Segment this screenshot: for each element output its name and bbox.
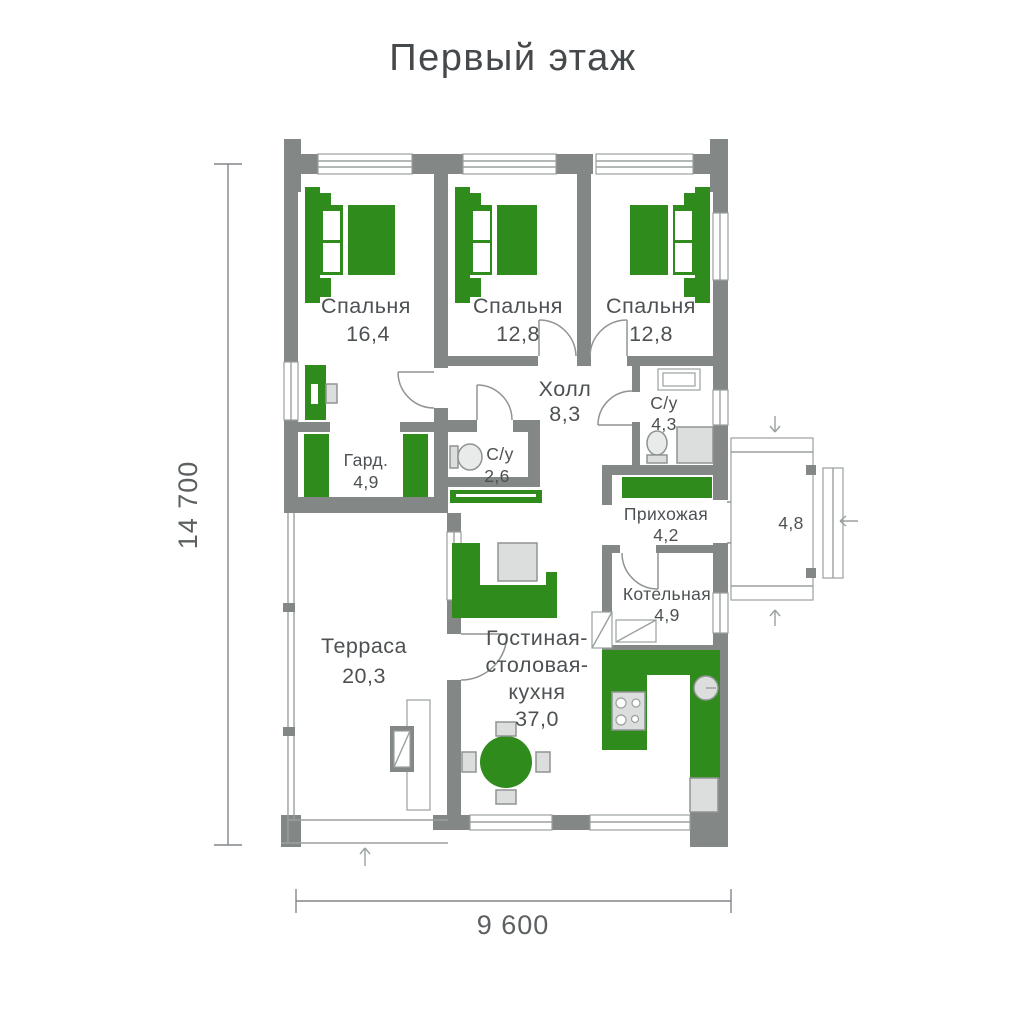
stove-icon xyxy=(612,692,645,730)
room-area-living: 37,0 xyxy=(515,707,559,731)
room-area-bathroom-small: 2,6 xyxy=(484,466,510,486)
room-area-terrace: 20,3 xyxy=(342,664,386,688)
room-area-entry: 4,2 xyxy=(653,525,679,545)
room-label-wardrobe: Гард. xyxy=(344,450,389,470)
room-label-hall: Холл xyxy=(539,377,592,401)
bed-icon xyxy=(305,187,395,303)
porch-steps xyxy=(823,468,843,578)
coffee-table-icon xyxy=(498,543,537,581)
room-label-bedroom2: Спальня xyxy=(473,294,563,318)
room-label-living-1: Гостиная- xyxy=(486,626,588,650)
sink-icon xyxy=(658,369,700,390)
dimension-width-label: 9 600 xyxy=(477,910,550,940)
bench-icon xyxy=(622,477,712,498)
room-label-bathroom: С/у xyxy=(650,393,677,413)
window-left-bedroom1 xyxy=(284,362,298,420)
room-label-entry: Прихожая xyxy=(624,504,708,524)
kitchen-sink-icon xyxy=(694,676,718,700)
room-area-wardrobe: 4,9 xyxy=(353,472,379,492)
room-label-living-3: кухня xyxy=(508,680,565,704)
dimension-vertical: 14 700 xyxy=(173,164,242,845)
desk-icon xyxy=(305,365,337,420)
window-right-boiler xyxy=(713,593,728,633)
window-top-1 xyxy=(318,154,412,174)
porch-arrow-down-icon xyxy=(770,416,780,432)
room-label-terrace: Терраса xyxy=(321,634,407,658)
room-area-bathroom: 4,3 xyxy=(651,414,677,434)
room-area-bedroom2: 12,8 xyxy=(496,322,540,346)
bed-icon xyxy=(630,187,710,303)
dimension-horizontal: 9 600 xyxy=(296,889,731,940)
dimension-height-label: 14 700 xyxy=(173,461,203,550)
chair-icon xyxy=(496,722,516,736)
door-bedroom3 xyxy=(590,320,627,356)
page-title: Первый этаж xyxy=(389,37,636,79)
window-top-2 xyxy=(463,154,556,174)
console-icon xyxy=(450,490,542,503)
fireplace-icon xyxy=(390,700,430,810)
door-bathroom xyxy=(598,391,632,425)
toilet-icon xyxy=(647,431,667,463)
terrace-entry-arrow-icon xyxy=(360,848,370,866)
chair-icon xyxy=(462,752,476,772)
chair-icon xyxy=(326,384,337,403)
shower-icon xyxy=(677,427,713,463)
chair-icon xyxy=(496,790,516,804)
floor-plan-page: Первый этаж xyxy=(0,0,1022,1024)
room-area-hall: 8,3 xyxy=(549,402,580,426)
dining-table-icon xyxy=(462,722,550,804)
window-bottom-1 xyxy=(470,815,552,830)
door-bathroom-small xyxy=(477,385,512,420)
room-area-porch: 4,8 xyxy=(778,513,804,533)
room-label-boiler: Котельная xyxy=(623,584,711,604)
bed-icon xyxy=(455,187,537,303)
room-label-bathroom-small: С/у xyxy=(486,444,513,464)
room-label-bedroom3: Спальня xyxy=(606,294,696,318)
floor-plan-drawing: Первый этаж xyxy=(0,0,1022,1024)
chair-icon xyxy=(536,752,550,772)
window-top-3 xyxy=(596,154,693,174)
window-bottom-2 xyxy=(590,815,690,830)
terrace-outline xyxy=(281,513,448,866)
door-bedroom2 xyxy=(539,320,576,356)
door-bedroom1 xyxy=(398,372,434,408)
room-area-boiler: 4,9 xyxy=(654,605,680,625)
room-label-bedroom1: Спальня xyxy=(321,294,411,318)
room-label-living-2: столовая- xyxy=(485,653,588,677)
window-right-bathroom xyxy=(713,390,728,425)
porch-arrow-up-icon xyxy=(770,610,780,626)
fridge-icon xyxy=(690,778,718,812)
boiler-icon xyxy=(592,612,656,648)
toilet-icon xyxy=(450,444,482,470)
room-area-bedroom3: 12,8 xyxy=(629,322,673,346)
room-area-bedroom1: 16,4 xyxy=(346,322,390,346)
window-right-bedroom3 xyxy=(713,213,728,280)
